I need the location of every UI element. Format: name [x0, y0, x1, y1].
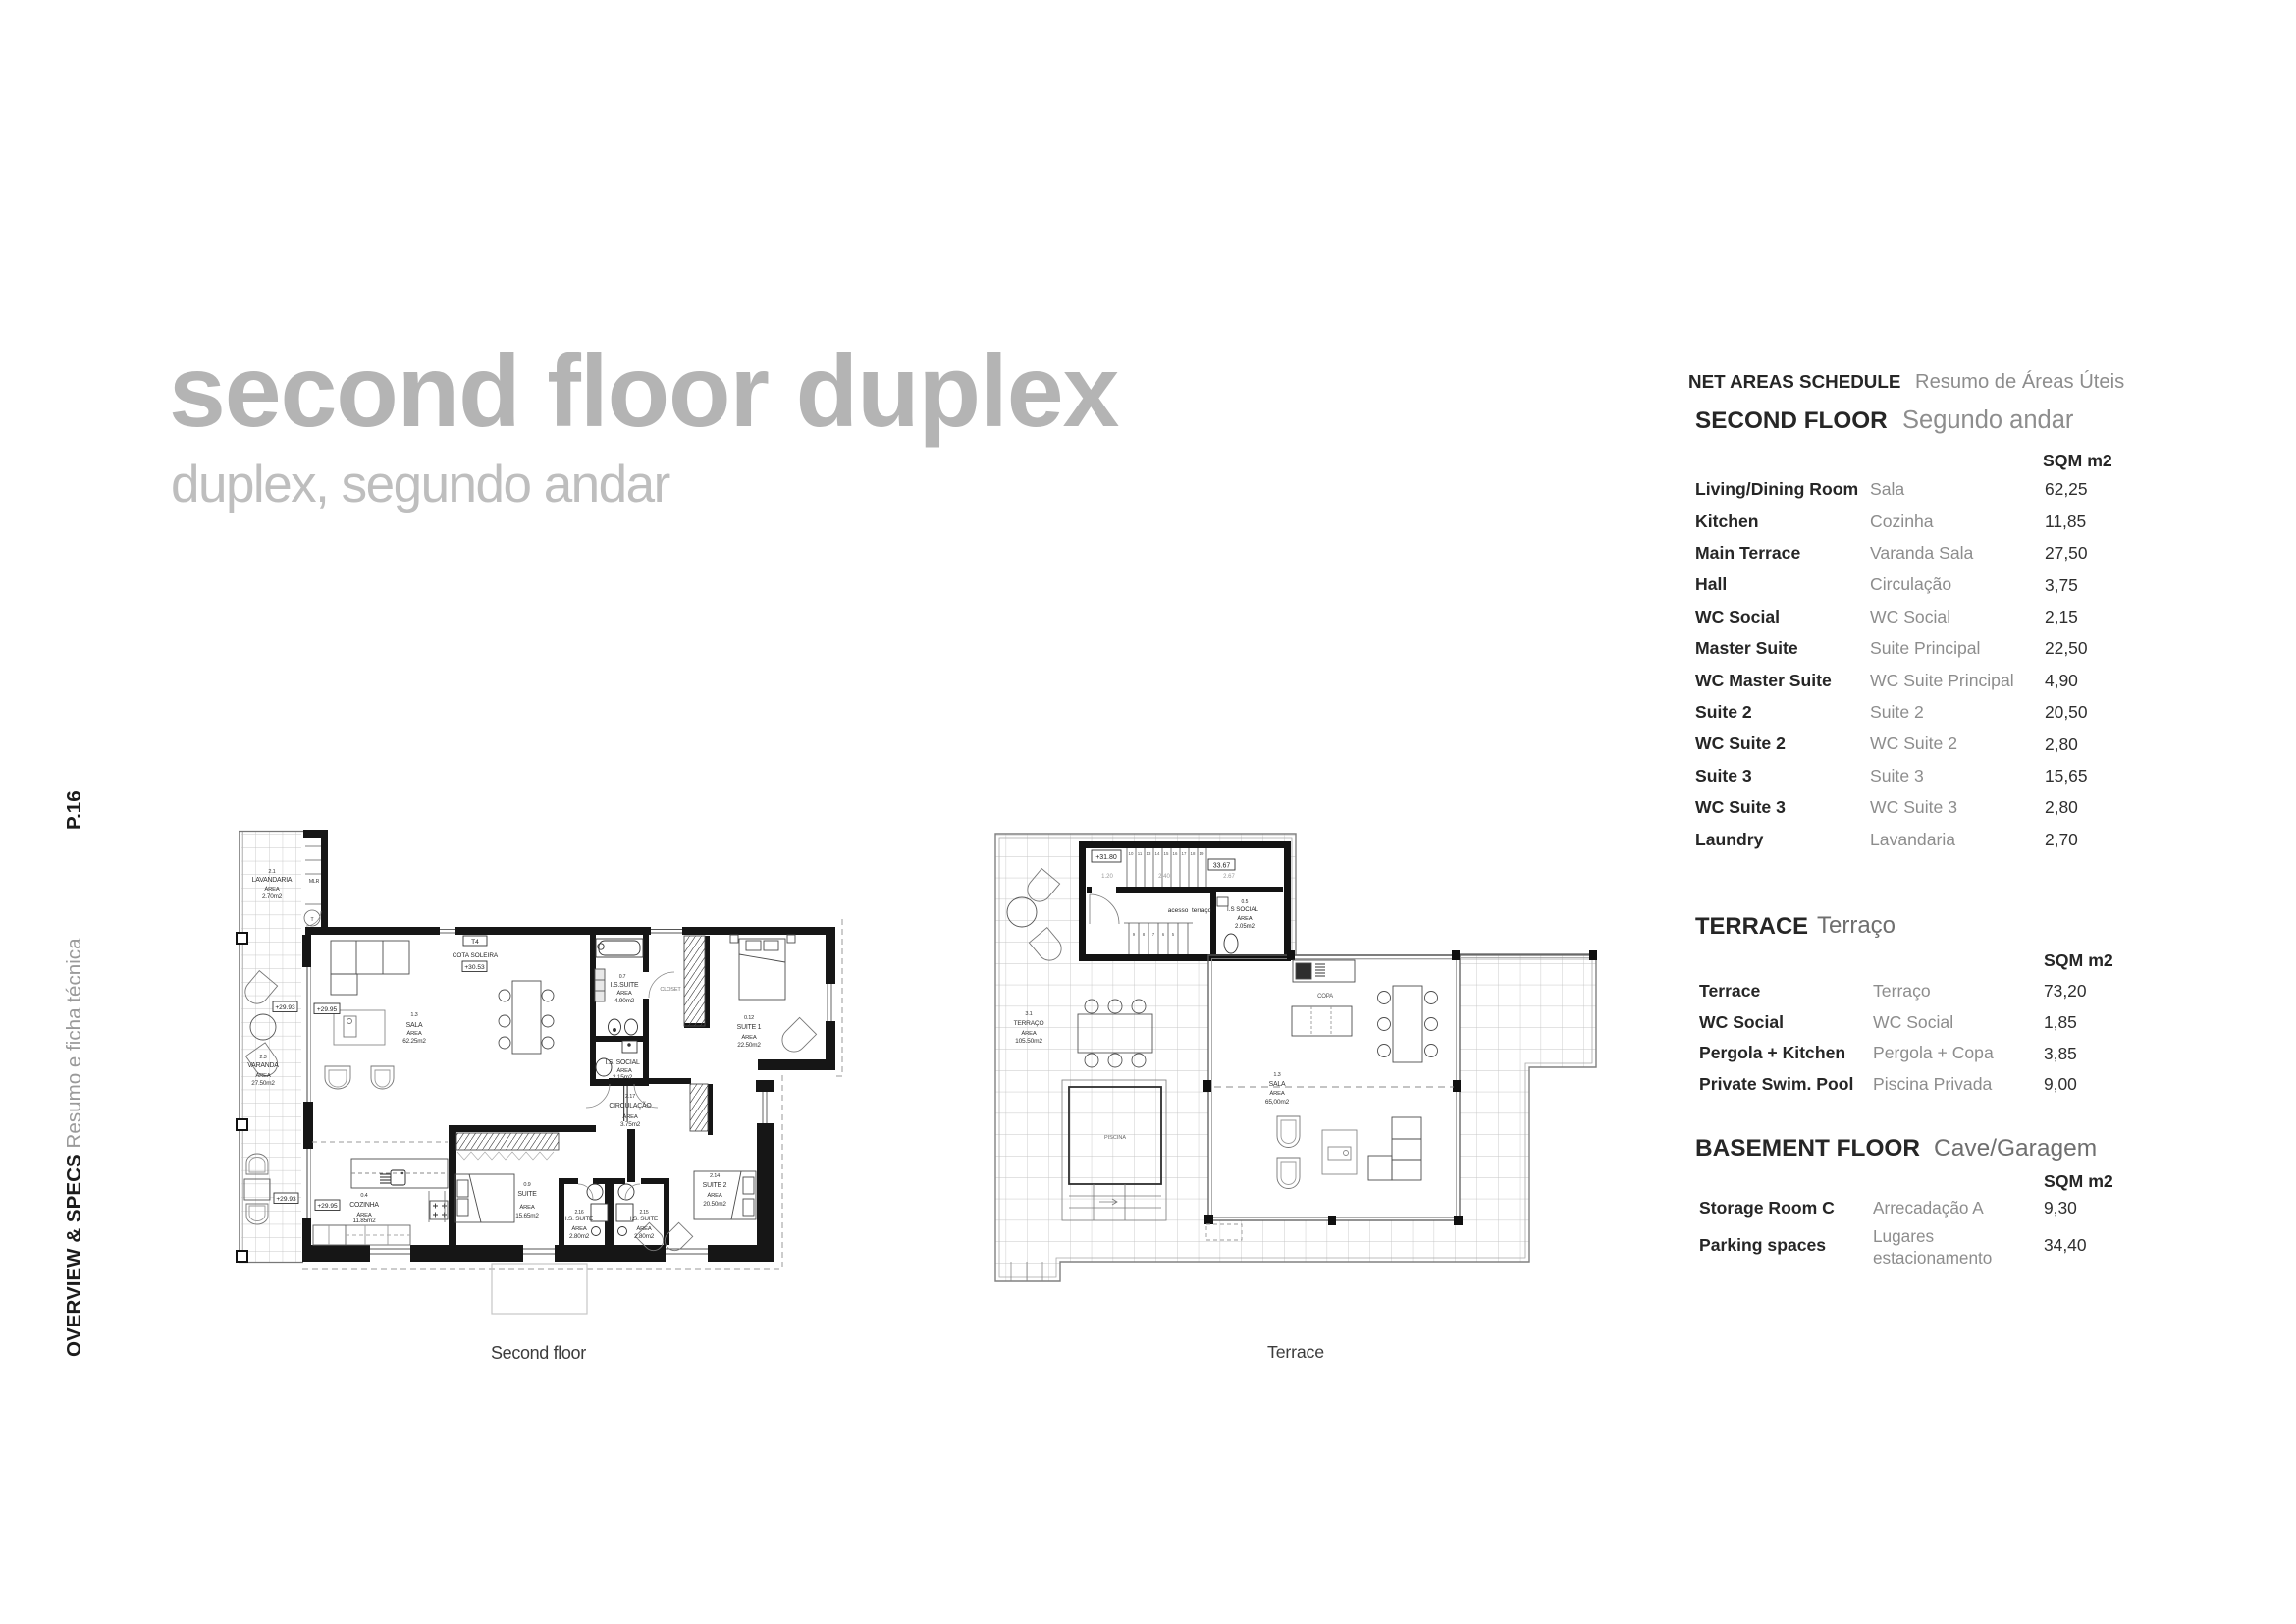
- svg-text:15: 15: [1164, 851, 1169, 856]
- svg-text:TERRAÇO: TERRAÇO: [1014, 1020, 1044, 1027]
- svg-text:0.4: 0.4: [360, 1193, 367, 1199]
- svg-text:+29.95: +29.95: [317, 1203, 338, 1210]
- svg-text:0.7: 0.7: [619, 974, 626, 980]
- svg-text:+30.53: +30.53: [464, 964, 485, 971]
- svg-text:SUITE: SUITE: [517, 1191, 537, 1198]
- svg-text:I.S. SOCIAL: I.S. SOCIAL: [605, 1059, 640, 1066]
- svg-text:0.9: 0.9: [523, 1182, 530, 1188]
- svg-text:ÁREA: ÁREA: [616, 990, 632, 997]
- svg-text:2.80m2: 2.80m2: [634, 1233, 655, 1240]
- svg-text:I.S. SUITE: I.S. SUITE: [630, 1216, 658, 1222]
- svg-text:2.05m2: 2.05m2: [1235, 924, 1255, 930]
- svg-text:19: 19: [1200, 851, 1204, 856]
- svg-text:1.3: 1.3: [1273, 1072, 1280, 1078]
- svg-text:ÁREA: ÁREA: [707, 1192, 722, 1199]
- svg-text:ÁREA: ÁREA: [519, 1204, 535, 1211]
- svg-text:CIRCULAÇÃO: CIRCULAÇÃO: [609, 1101, 652, 1110]
- svg-text:2.15m2: 2.15m2: [613, 1074, 633, 1081]
- svg-text:2.17: 2.17: [625, 1094, 635, 1100]
- svg-text:COPA: COPA: [1317, 994, 1333, 1000]
- svg-text:ÁREA: ÁREA: [1269, 1090, 1285, 1097]
- svg-text:+29.95: +29.95: [317, 1006, 338, 1013]
- svg-text:20.50m2: 20.50m2: [703, 1201, 726, 1208]
- svg-text:COZINHA: COZINHA: [349, 1202, 379, 1209]
- svg-text:27.50m2: 27.50m2: [251, 1080, 275, 1087]
- svg-text:2.70m2: 2.70m2: [262, 893, 283, 900]
- svg-text:14: 14: [1155, 851, 1160, 856]
- svg-text:18: 18: [1191, 851, 1196, 856]
- svg-text:2.40: 2.40: [1158, 874, 1170, 880]
- svg-text:65,00m2: 65,00m2: [1265, 1099, 1290, 1106]
- svg-text:2.67: 2.67: [1223, 874, 1235, 880]
- svg-text:SALA: SALA: [1269, 1081, 1286, 1088]
- svg-text:ÁREA: ÁREA: [264, 886, 280, 893]
- svg-text:ÁREA: ÁREA: [406, 1030, 422, 1037]
- svg-text:1.20: 1.20: [1101, 874, 1113, 880]
- svg-text:0.12: 0.12: [744, 1015, 754, 1021]
- svg-text:ÁREA: ÁREA: [616, 1067, 632, 1074]
- svg-text:ÁREA: ÁREA: [622, 1113, 638, 1120]
- svg-text:ÁREA: ÁREA: [571, 1225, 587, 1232]
- svg-text:10: 10: [1129, 851, 1134, 856]
- svg-text:CLOSET: CLOSET: [660, 987, 681, 993]
- svg-text:SUITE 2: SUITE 2: [703, 1182, 727, 1189]
- svg-text:0.5: 0.5: [1242, 899, 1249, 905]
- svg-text:5: 5: [1172, 932, 1175, 937]
- svg-text:2.1: 2.1: [268, 869, 275, 875]
- svg-text:13: 13: [1147, 851, 1151, 856]
- svg-text:I.S.SUITE: I.S.SUITE: [611, 982, 639, 989]
- svg-text:ÁREA: ÁREA: [1237, 915, 1253, 922]
- svg-text:8: 8: [1143, 932, 1146, 937]
- svg-text:6: 6: [1162, 932, 1165, 937]
- svg-text:22.50m2: 22.50m2: [737, 1042, 761, 1049]
- svg-text:VARANDA: VARANDA: [247, 1062, 279, 1069]
- svg-text:ÁREA: ÁREA: [636, 1225, 652, 1232]
- svg-text:I.S. SUITE: I.S. SUITE: [565, 1216, 593, 1222]
- svg-text:LAVANDARIA: LAVANDARIA: [252, 877, 293, 884]
- svg-text:7: 7: [1152, 932, 1155, 937]
- svg-text:+29.93: +29.93: [276, 1196, 296, 1203]
- svg-text:4.90m2: 4.90m2: [614, 998, 635, 1004]
- svg-text:COTA SOLEIRA: COTA SOLEIRA: [453, 952, 499, 959]
- svg-text:11.85m2: 11.85m2: [353, 1218, 377, 1224]
- svg-text:11: 11: [1138, 851, 1143, 856]
- svg-text:ÁREA: ÁREA: [1021, 1030, 1037, 1037]
- svg-text:ÁREA: ÁREA: [255, 1072, 271, 1079]
- svg-text:16: 16: [1173, 851, 1178, 856]
- svg-text:MLR: MLR: [309, 879, 320, 885]
- svg-text:T: T: [311, 917, 314, 923]
- svg-text:9: 9: [1133, 932, 1136, 937]
- svg-text:2.3: 2.3: [259, 1055, 266, 1060]
- svg-text:ÁREA: ÁREA: [741, 1034, 757, 1041]
- svg-text:I.S SOCIAL: I.S SOCIAL: [1227, 906, 1259, 913]
- svg-text:SUITE 1: SUITE 1: [737, 1024, 762, 1031]
- svg-text:+31.80: +31.80: [1095, 854, 1117, 861]
- svg-text:62.25m2: 62.25m2: [402, 1038, 426, 1045]
- svg-text:2.14: 2.14: [710, 1173, 720, 1179]
- svg-text:3.1: 3.1: [1025, 1011, 1032, 1017]
- svg-text:2.80m2: 2.80m2: [569, 1233, 590, 1240]
- svg-text:PISCINA: PISCINA: [1104, 1135, 1126, 1141]
- svg-text:105.50m2: 105.50m2: [1015, 1038, 1042, 1045]
- svg-text:33.67: 33.67: [1213, 863, 1231, 870]
- svg-text:SALA: SALA: [406, 1022, 423, 1029]
- svg-text:15.65m2: 15.65m2: [515, 1213, 539, 1219]
- svg-text:T4: T4: [471, 939, 479, 946]
- svg-text:1.3: 1.3: [410, 1012, 417, 1018]
- svg-text:3.75m2: 3.75m2: [620, 1121, 641, 1128]
- svg-text:+29.93: +29.93: [275, 1004, 295, 1011]
- svg-text:17: 17: [1182, 851, 1187, 856]
- svg-text:acesso terraço: acesso terraço: [1168, 907, 1212, 914]
